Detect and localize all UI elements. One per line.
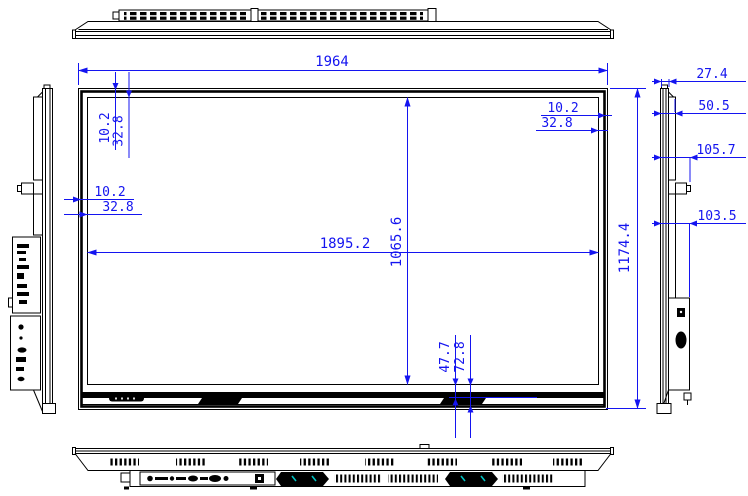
dim-label-depth-body: 50.5 (698, 99, 729, 114)
dim-label-bezel-left-1: 10.2 (94, 185, 125, 200)
dim-label-depth-front: 27.4 (696, 67, 727, 82)
dim-label-active-height: 1065.6 (389, 217, 405, 268)
dim-active-width: 1895.2 (88, 236, 599, 253)
right-side-view (657, 85, 691, 414)
left-port-panel-upper (13, 237, 41, 313)
dim-label-bezel-top-2: 32.8 (112, 115, 127, 146)
power-inlet (676, 332, 687, 349)
left-side-button (18, 183, 34, 194)
dim-label-depth-button: 105.7 (696, 143, 735, 158)
dim-label-active-width: 1895.2 (320, 236, 371, 252)
dim-depth-front: 27.4 (652, 67, 746, 87)
top-vent-bar (113, 9, 436, 23)
dim-label-bezel-bottom-2: 72.8 (453, 341, 468, 372)
bottom-port-panel (140, 472, 275, 485)
bezel-insert-left (198, 392, 246, 404)
dim-active-height: 1065.6 (389, 98, 408, 385)
dim-label-overall-height: 1174.4 (617, 223, 633, 274)
dim-overall-width: 1964 (79, 54, 608, 85)
dim-bezel-left: 10.2 32.8 (64, 185, 142, 218)
right-rear-box (669, 298, 692, 405)
left-panel-slab (43, 89, 53, 412)
bottom-speaker-left (276, 472, 329, 486)
dim-overall-height: 1174.4 (606, 89, 646, 409)
bottom-vent-groups (109, 459, 583, 466)
bottom-view (73, 445, 614, 490)
right-panel-slab (661, 89, 669, 412)
right-side-button (676, 183, 691, 194)
dimension-drawing: 1964 1895.2 1065.6 1174.4 10.2 32.8 10.2… (0, 0, 748, 496)
dim-label-bezel-right-2: 32.8 (541, 116, 572, 131)
bottom-protrusion-vents (334, 475, 554, 483)
dim-label-bezel-right-1: 10.2 (547, 101, 578, 116)
dim-label-overall-width: 1964 (315, 54, 349, 70)
technical-drawing-canvas: 1964 1895.2 1065.6 1174.4 10.2 32.8 10.2… (0, 0, 748, 496)
dim-bezel-top-left: 10.2 32.8 (98, 72, 132, 158)
top-view (73, 9, 614, 39)
dim-label-bezel-bottom-1: 47.7 (438, 341, 453, 372)
bottom-view-body (75, 454, 611, 471)
dim-bezel-bottom: 47.7 72.8 (438, 335, 537, 438)
bottom-speaker-right (445, 472, 498, 486)
dim-bezel-top-right: 10.2 32.8 (536, 101, 612, 134)
left-port-panel-lower (11, 316, 41, 390)
brand-logo (109, 396, 144, 402)
dim-label-depth-lower: 103.5 (697, 209, 736, 224)
left-side-view (9, 85, 56, 414)
dim-label-bezel-left-2: 32.8 (102, 200, 133, 215)
